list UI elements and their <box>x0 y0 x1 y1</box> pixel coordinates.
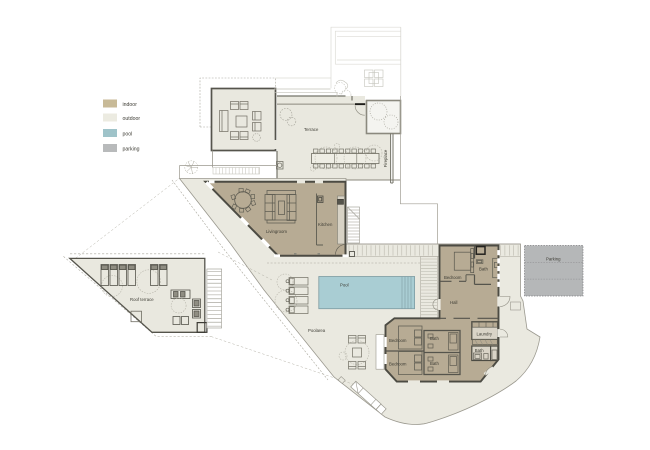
svg-text:Bath: Bath <box>479 267 488 272</box>
svg-text:Fireplace: Fireplace <box>383 149 388 167</box>
svg-text:Poolarea: Poolarea <box>308 328 326 333</box>
svg-text:Kitchen: Kitchen <box>318 222 333 227</box>
svg-text:Roof terrace: Roof terrace <box>130 297 154 302</box>
svg-text:Terrace: Terrace <box>304 127 319 132</box>
svg-text:Parking: Parking <box>546 257 561 262</box>
svg-text:Bath: Bath <box>475 348 484 353</box>
svg-text:Livingroom: Livingroom <box>266 229 287 234</box>
svg-text:Bedroom: Bedroom <box>389 362 407 367</box>
svg-text:Bath: Bath <box>430 336 439 341</box>
svg-text:Bath: Bath <box>430 361 439 366</box>
svg-text:parking: parking <box>123 147 140 153</box>
svg-text:indoor: indoor <box>123 102 138 108</box>
svg-text:outdoor: outdoor <box>123 116 141 122</box>
svg-text:Pool: Pool <box>340 283 349 288</box>
svg-text:Bedroom: Bedroom <box>444 275 462 280</box>
svg-text:pool: pool <box>123 132 133 138</box>
svg-text:Bedroom: Bedroom <box>389 338 407 343</box>
svg-text:Hall: Hall <box>450 300 457 305</box>
svg-text:Laundry: Laundry <box>477 332 493 337</box>
